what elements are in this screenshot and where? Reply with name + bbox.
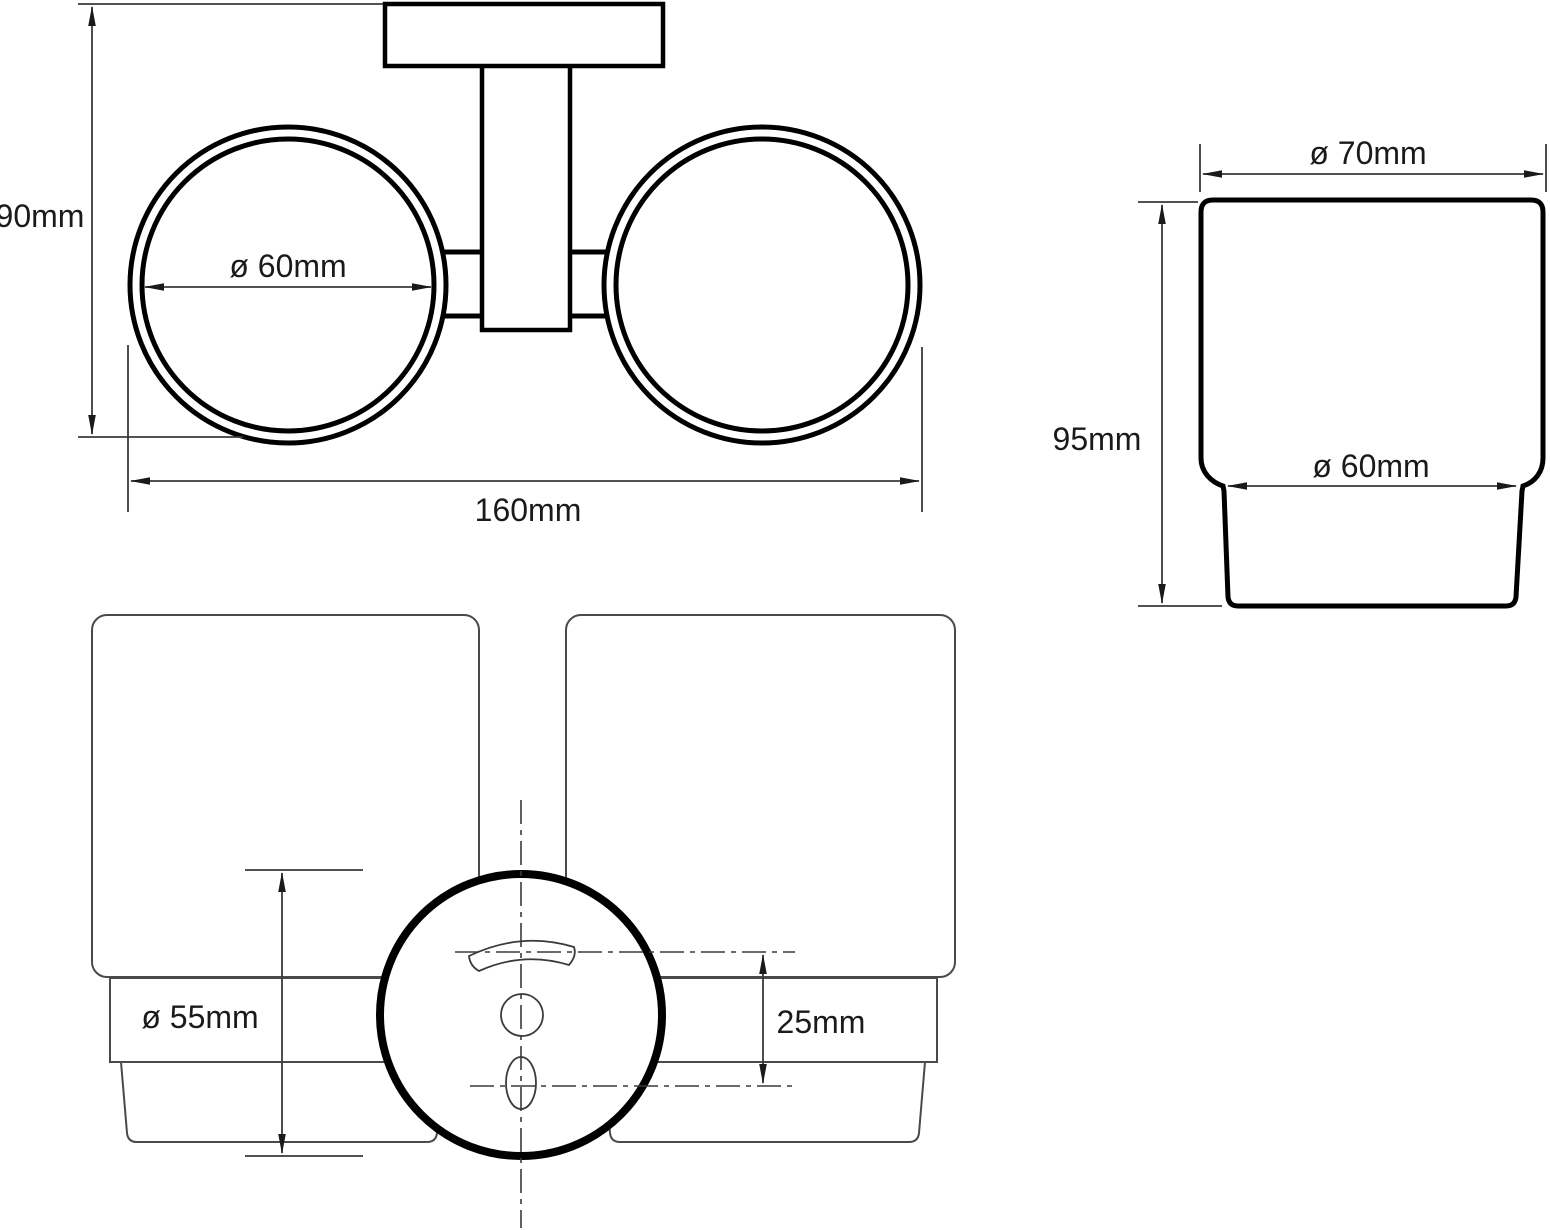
front-view: ø 55mm 25mm bbox=[92, 615, 955, 1228]
left-ring-outer bbox=[130, 127, 446, 443]
dim-label-55mm: ø 55mm bbox=[141, 999, 258, 1035]
dim-label-160mm: 160mm bbox=[475, 492, 582, 528]
dim-label-25mm: 25mm bbox=[777, 1004, 866, 1040]
dim-label-cup-60mm: ø 60mm bbox=[1312, 448, 1429, 484]
top-view: 90mm ø 60mm 160mm bbox=[0, 4, 922, 528]
wall-plate bbox=[385, 4, 663, 66]
dim-cup-height-95mm: 95mm bbox=[1053, 202, 1222, 606]
dim-label-95mm: 95mm bbox=[1053, 421, 1142, 457]
dim-cup-top-diameter-70mm: ø 70mm bbox=[1200, 135, 1546, 192]
dim-label-ring-60mm: ø 60mm bbox=[229, 248, 346, 284]
mount-stem bbox=[482, 62, 570, 330]
right-ring-outer bbox=[604, 127, 920, 443]
dim-label-90mm: 90mm bbox=[0, 198, 84, 234]
technical-drawing-page: 90mm ø 60mm 160mm ø 70mm bbox=[0, 0, 1550, 1230]
cup-outline bbox=[1201, 200, 1543, 606]
drawing-svg: 90mm ø 60mm 160mm ø 70mm bbox=[0, 0, 1550, 1230]
dim-label-70mm: ø 70mm bbox=[1309, 135, 1426, 171]
cup-side-view: ø 70mm 95mm ø 60mm bbox=[1053, 135, 1546, 606]
